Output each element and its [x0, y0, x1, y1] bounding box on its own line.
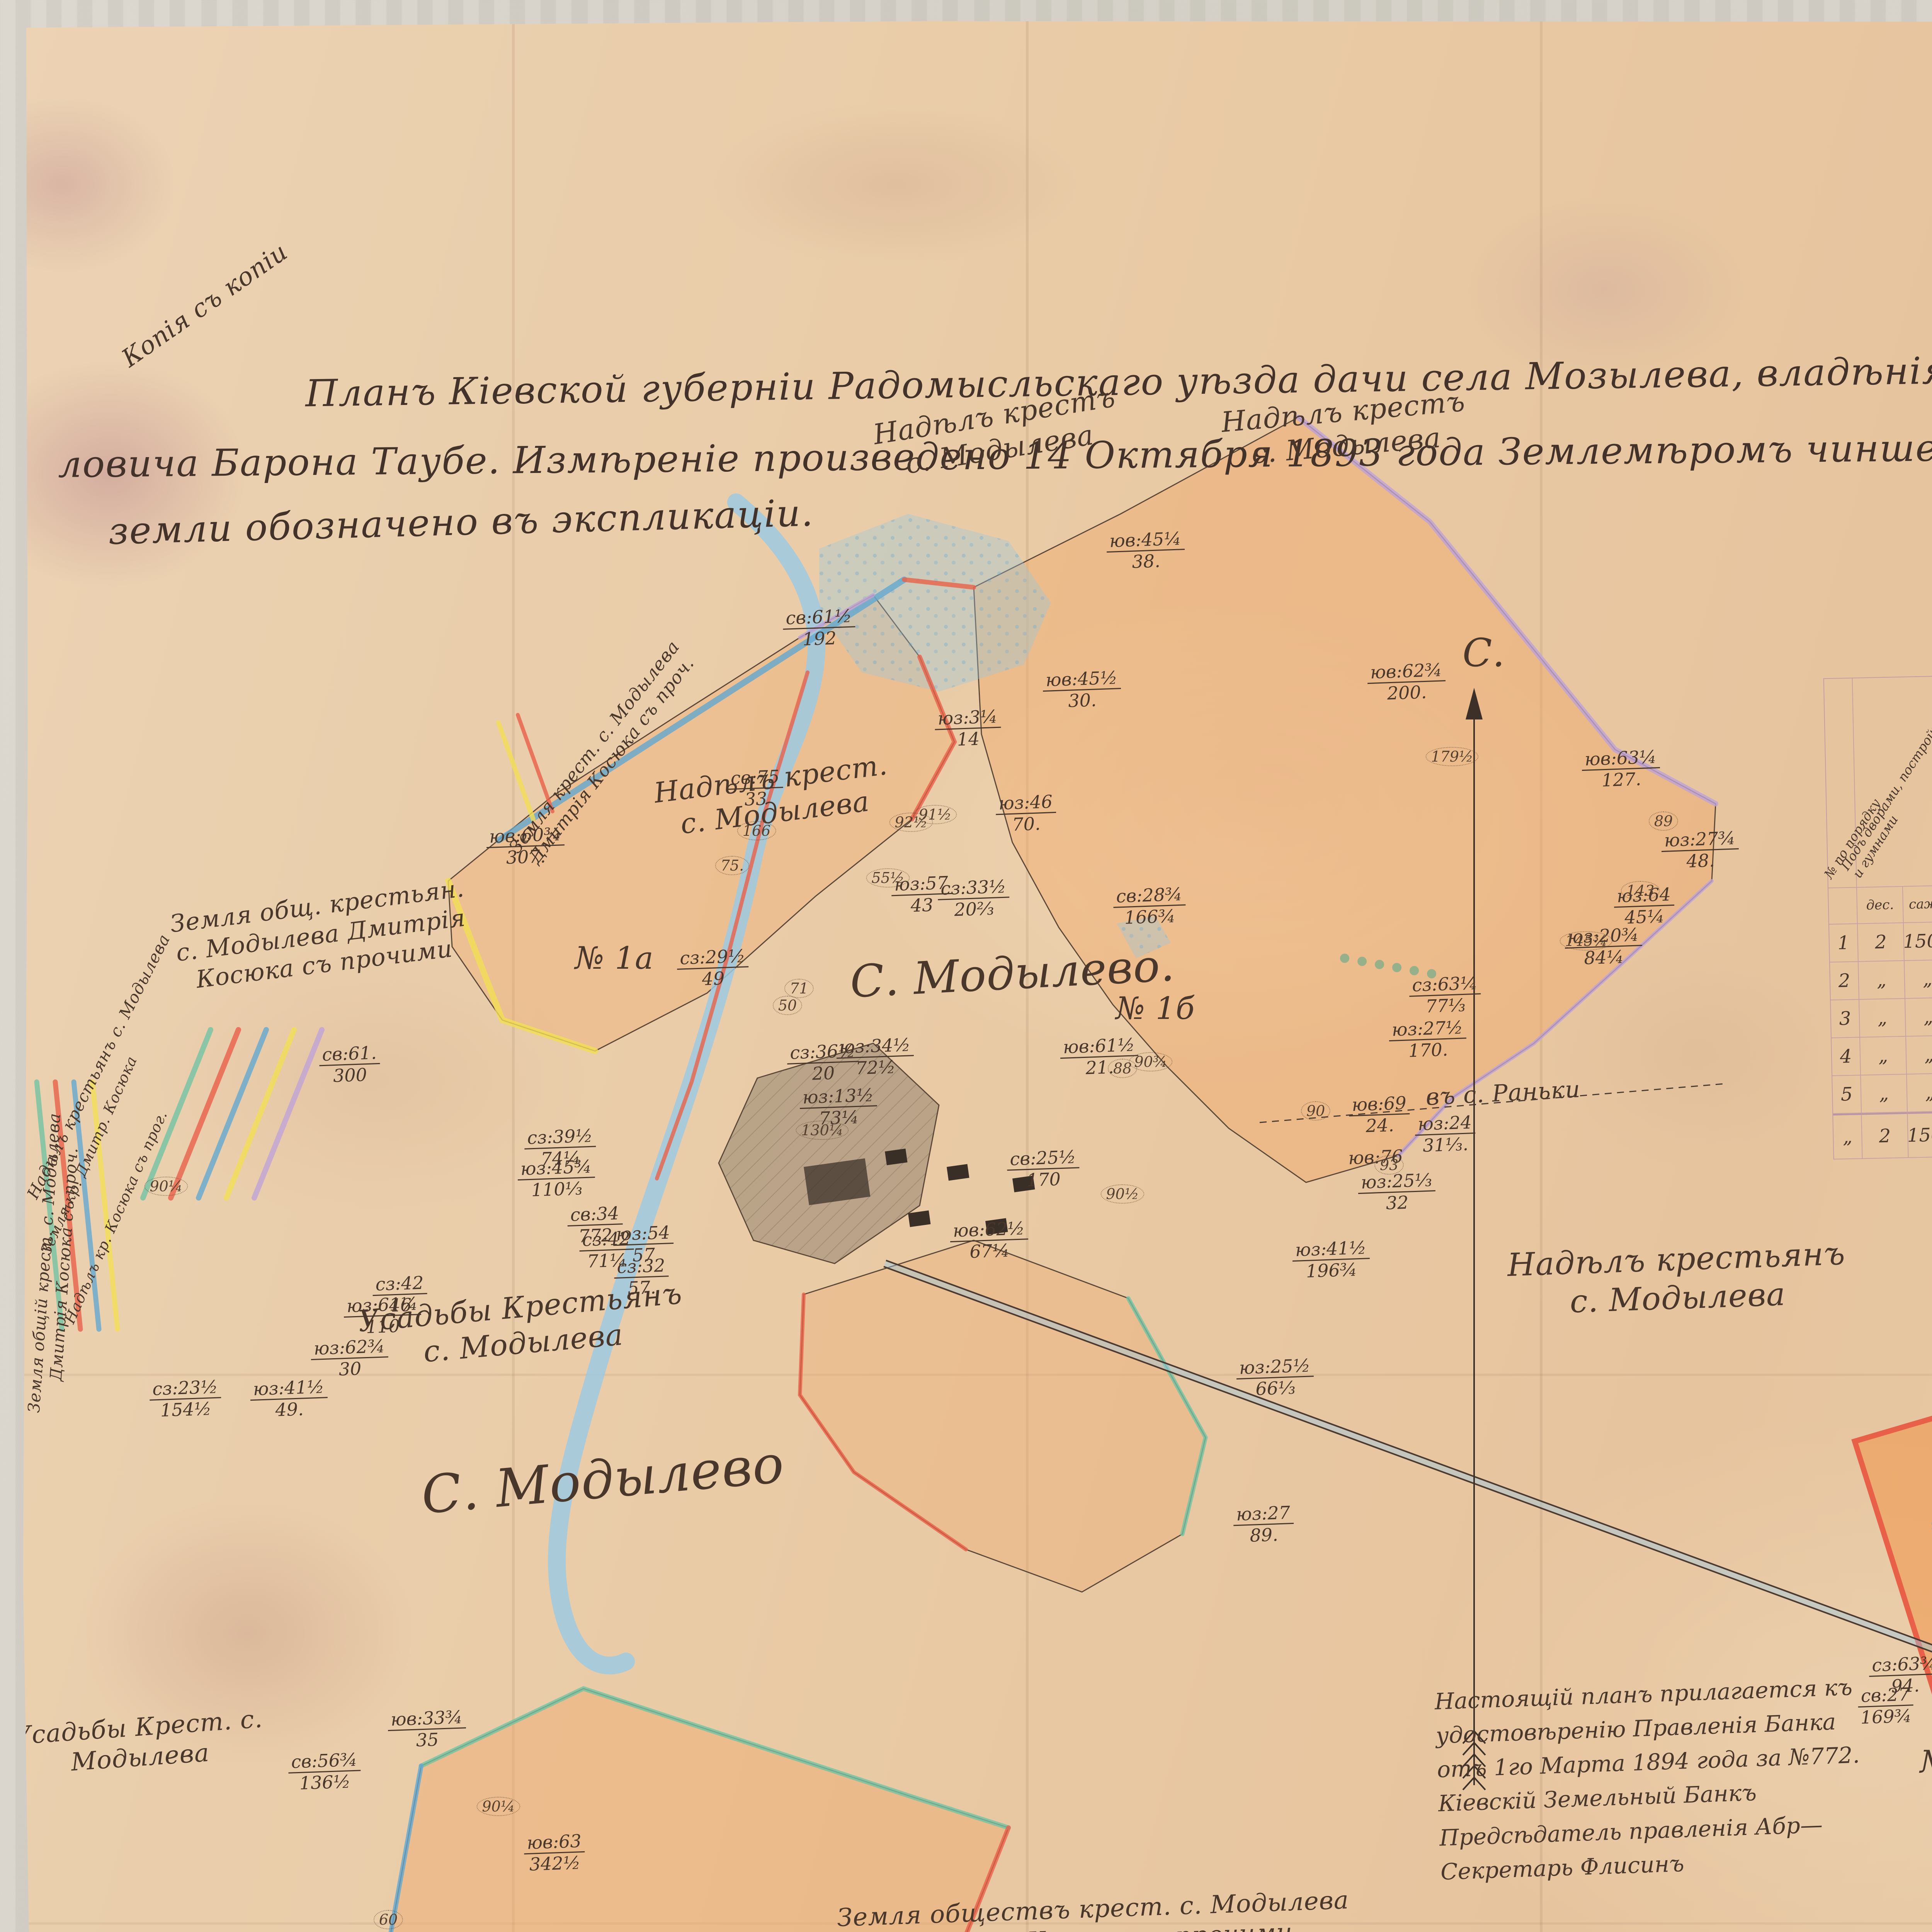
bearing-annotation: св:28¾166¾ [1113, 884, 1187, 928]
table-row-number: 5 [1832, 1075, 1862, 1114]
table-row-number: 2 [1830, 962, 1859, 1000]
bearing-annotation: юв:45¼38. [1106, 528, 1185, 573]
table-unit-cell [1828, 888, 1858, 925]
bearing-annotation: юз:25½66⅓ [1236, 1355, 1315, 1400]
bearing-annotation: юз:45¾110⅓ [517, 1156, 596, 1201]
bearing-annotation: св:61½192 [782, 605, 856, 650]
angle-annotation: 60 [374, 1910, 403, 1929]
bearing-annotation: юз:25⅓32 [1357, 1170, 1436, 1214]
map-label: Надѣлъ крестьянъ с. Модылева [1507, 1235, 1847, 1323]
angle-annotation: 50 [773, 996, 802, 1015]
bearing-annotation: св:7533 [727, 766, 784, 810]
bearing-annotation: юв:6924. [1348, 1093, 1410, 1137]
angle-annotation: 145¾ [1560, 931, 1612, 951]
table-value-cell: 2 [1858, 923, 1905, 962]
table-value-cell: „ [1905, 960, 1932, 998]
table-value-cell: „ [1860, 1037, 1907, 1075]
table-value-cell: „ [1907, 1073, 1932, 1112]
bearing-annotation: юв:45½30. [1042, 667, 1122, 712]
angle-annotation: 55½ [866, 868, 910, 888]
angle-annotation: 130¼ [796, 1121, 849, 1140]
table-unit-cell: дес. [1857, 887, 1904, 924]
bearing-annotation: юв:62½67¼ [949, 1218, 1029, 1263]
bearing-annotation: св:25½170 [1007, 1146, 1080, 1191]
bearing-annotation: юз:41½49. [250, 1376, 328, 1421]
bearing-annotation: юз:4670. [995, 791, 1056, 835]
angle-annotation: 75. [715, 856, 749, 875]
angle-annotation: 90¼ [144, 1177, 188, 1196]
table-row-number: 3 [1831, 1000, 1860, 1038]
table-value-cell: „ [1859, 961, 1905, 1000]
bearing-annotation: сз:63¼77⅓ [1408, 973, 1481, 1017]
bearing-annotation: св:61.300 [319, 1043, 381, 1087]
bearing-annotation: юв:33¾35 [387, 1707, 467, 1752]
table-unit-cell: саж. [1903, 886, 1932, 923]
map-label: № 1а [575, 939, 654, 977]
angle-annotation: 91½ [913, 805, 957, 824]
bearing-annotation: юв:62¾200. [1367, 660, 1446, 704]
angle-annotation: 90½ [1100, 1184, 1144, 1204]
explication-table: Экспликація. № по порядкуПодъ дворами, п… [1822, 606, 1932, 1160]
table-column-header: Подъ дворами, постройками и гумнами [1853, 677, 1932, 888]
bearing-annotation: юз:27½170. [1388, 1017, 1467, 1062]
bearing-annotation: юз:62¾30 [310, 1336, 389, 1381]
bearing-annotation: св:56¾136½ [288, 1749, 362, 1794]
angle-annotation: 90 [1301, 1101, 1330, 1121]
table-value-cell: „ [1906, 1036, 1932, 1074]
bearing-annotation: юв:63342½ [523, 1831, 585, 1875]
angle-annotation: 90¼ [476, 1797, 520, 1816]
bearing-annotation: юз:34½72½ [836, 1034, 915, 1079]
table-row-number: 4 [1832, 1037, 1861, 1076]
bearing-annotation: юз:2789. [1233, 1502, 1294, 1546]
table-value-cell: „ [1861, 1075, 1908, 1113]
table-total-cell: 2 [1862, 1112, 1908, 1159]
table-value-cell: 1500 [1904, 922, 1932, 961]
map-label: № 1б [1116, 990, 1195, 1027]
table-value-cell: „ [1859, 999, 1906, 1037]
angle-annotation: 166 [737, 821, 776, 840]
angle-annotation: 179½ [1425, 747, 1478, 766]
table-total-row-number: „ [1833, 1113, 1862, 1160]
bearing-annotation: сз:23½154½ [149, 1376, 222, 1421]
bearing-annotation: юз:27¾48. [1661, 828, 1740, 872]
bearing-annotation: юв:63¼127. [1581, 747, 1661, 791]
bearing-annotation: сз:3257. [614, 1255, 670, 1299]
angle-annotation: 143 [1621, 881, 1660, 900]
bearing-annotation: сз:33½20⅔ [937, 876, 1010, 920]
explication-grid: № по порядкуПодъ дворами, постройками и … [1823, 654, 1932, 1160]
bearing-annotation: юз:2431⅓. [1414, 1112, 1476, 1156]
bearing-annotation: юв:60¾307. [486, 824, 565, 869]
bearing-annotation: сз:29½49 [676, 946, 749, 990]
table-row-number: 1 [1829, 924, 1859, 963]
angle-annotation: 71 [784, 979, 814, 998]
paper-sheet: Планъ Кіевской губерніи Радомысльскаго у… [0, 0, 1932, 1932]
bearing-annotation: юз:3¼14 [934, 706, 1002, 751]
bearing-annotation: юз:41½196¾ [1292, 1237, 1371, 1282]
angle-annotation: 89 [1649, 811, 1678, 831]
table-value-cell: „ [1905, 998, 1932, 1036]
bearing-annotation: юз:61¼110 [343, 1293, 422, 1338]
angle-annotation: 93 [1374, 1155, 1404, 1175]
table-total-cell: 1500 [1908, 1111, 1932, 1158]
bank-certification-note: Настоящій планъ прилагается къ удостовѣр… [1434, 1662, 1932, 1889]
map-label: С. [1463, 629, 1505, 677]
angle-annotation: 90¾ [1129, 1052, 1172, 1071]
